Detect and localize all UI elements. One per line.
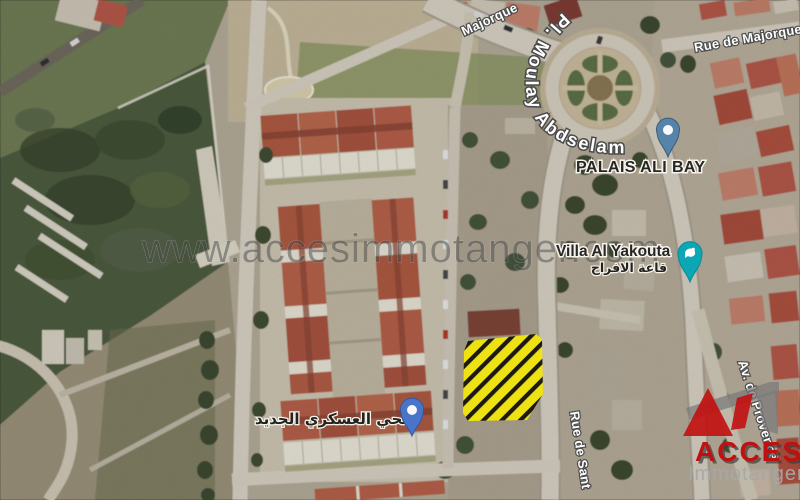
listing-map-image: www.accesimmotanger.com Majorque Pl. Mou… — [0, 0, 800, 500]
satellite-map[interactable]: www.accesimmotanger.com Majorque Pl. Mou… — [0, 0, 800, 500]
place-label-villa-al-yakouta: Villa Al Yakouta — [556, 243, 671, 260]
highlighted-plot[interactable] — [463, 334, 543, 421]
brand-subtitle: Immotanger — [688, 463, 800, 485]
place-label-villa-al-yakouta-arabic: قاعة الافراح — [591, 260, 667, 275]
place-label-military-district: الحي العسكري الجديد — [255, 410, 413, 429]
place-label-palais-ali-bay: PALAIS ALI BAY — [576, 159, 705, 176]
